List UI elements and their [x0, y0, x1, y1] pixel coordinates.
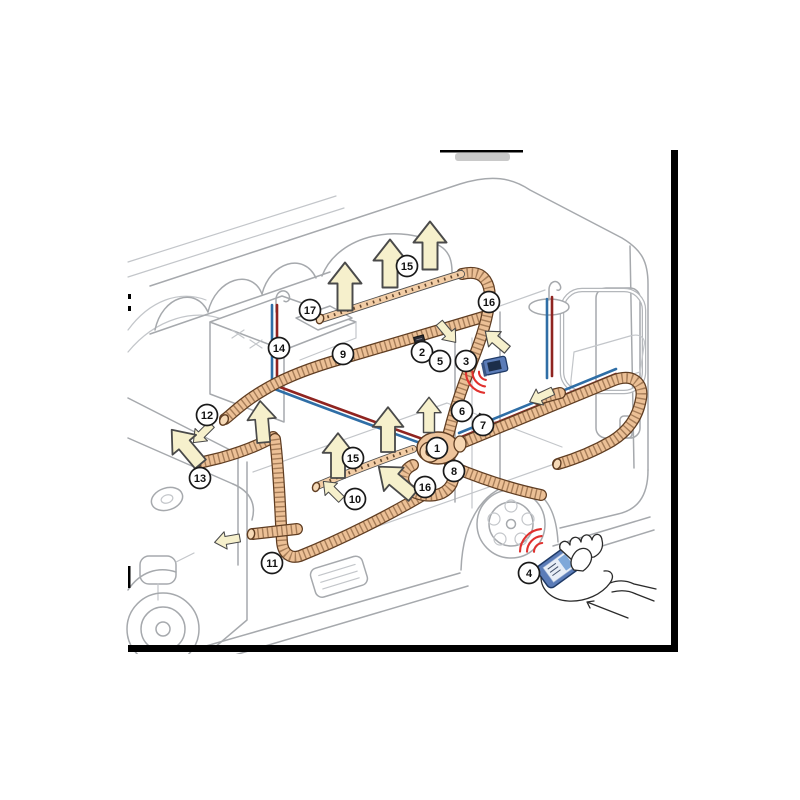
- bathroom-sink: [529, 299, 569, 315]
- callout-16-duct-bend: 16: [415, 477, 436, 498]
- callout-4-smartphone-remote: 4: [519, 563, 540, 584]
- motorhome-heating-system-diagram: 12345678910111213141515161617: [0, 0, 800, 800]
- callout-8-drain-valve: 8: [444, 461, 465, 482]
- svg-text:6: 6: [459, 406, 465, 418]
- control-panel: [481, 356, 509, 377]
- callout-5-wall-sensor: 5: [430, 351, 451, 372]
- callout-10-air-duct: 10: [345, 489, 366, 510]
- svg-text:17: 17: [304, 305, 316, 317]
- svg-text:10: 10: [349, 494, 361, 506]
- svg-text:14: 14: [273, 343, 286, 355]
- svg-text:16: 16: [483, 297, 495, 309]
- callout-16-duct-bend: 16: [479, 292, 500, 313]
- duct-10-cab-stub: [247, 528, 297, 539]
- callout-17-duct-end-cap: 17: [300, 300, 321, 321]
- callout-9-air-duct: 9: [333, 344, 354, 365]
- steering-wheel: [148, 484, 185, 515]
- svg-text:8: 8: [451, 466, 457, 478]
- callout-13-air-duct-end: 13: [190, 468, 211, 489]
- hand-with-smartphone: [535, 534, 656, 618]
- airflow-arrow: [414, 222, 447, 270]
- svg-text:9: 9: [340, 349, 346, 361]
- svg-text:13: 13: [194, 473, 206, 485]
- wrist: [610, 581, 656, 601]
- callout-3-wall-control-panel: 3: [456, 351, 477, 372]
- callout-7-wall-bracket: 7: [473, 415, 494, 436]
- svg-text:4: 4: [526, 568, 533, 580]
- callout-15-vent-rail: 15: [397, 256, 418, 277]
- callout-11-air-duct: 11: [262, 553, 283, 574]
- entry-step-grille: [309, 554, 369, 598]
- svg-text:5: 5: [437, 356, 443, 368]
- airflow-arrow: [213, 529, 241, 551]
- svg-text:3: 3: [463, 356, 469, 368]
- callout-1-heater-unit: 1: [427, 438, 448, 459]
- svg-text:7: 7: [480, 420, 486, 432]
- svg-text:11: 11: [266, 558, 278, 570]
- svg-text:12: 12: [201, 410, 213, 422]
- callout-14-water-lines-sink: 14: [269, 338, 290, 359]
- callout-6-connection-point: 6: [452, 401, 473, 422]
- svg-text:15: 15: [401, 261, 413, 273]
- airflow-arrow: [417, 397, 441, 432]
- svg-text:2: 2: [419, 347, 425, 359]
- airflow-arrow: [329, 263, 362, 311]
- callout-12-air-outlet: 12: [197, 405, 218, 426]
- phone-signal-icon: [520, 529, 542, 552]
- svg-text:16: 16: [419, 482, 431, 494]
- svg-text:1: 1: [434, 443, 440, 455]
- callout-15-vent-rail: 15: [343, 448, 364, 469]
- diagram-canvas: 12345678910111213141515161617: [0, 0, 800, 800]
- svg-text:15: 15: [347, 453, 359, 465]
